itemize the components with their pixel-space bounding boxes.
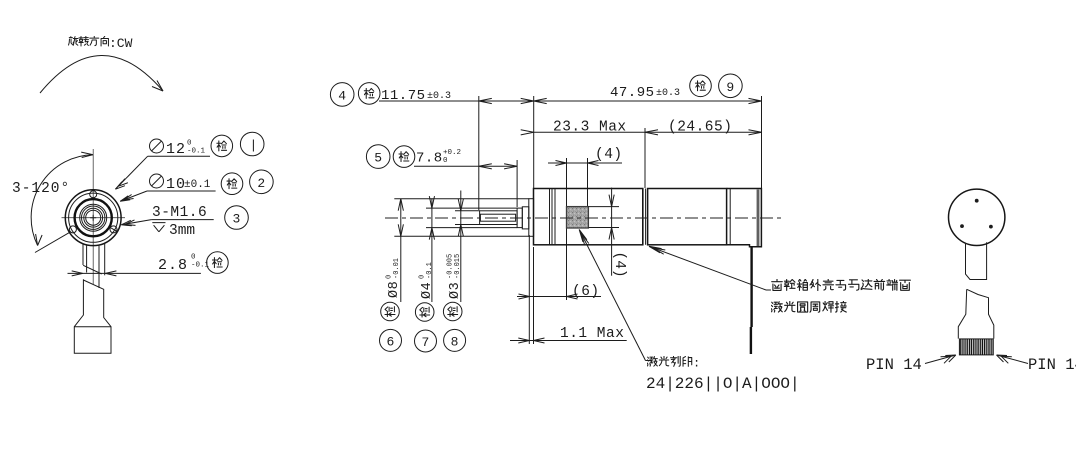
svg-text:(24.65): (24.65) [668, 120, 732, 136]
svg-text:|: | [250, 138, 258, 153]
svg-text:3-M1.6: 3-M1.6 [152, 205, 207, 221]
svg-text:5: 5 [374, 151, 382, 166]
svg-text:3: 3 [233, 212, 241, 227]
svg-text:1.1 Max: 1.1 Max [560, 326, 624, 342]
svg-text:Ø4: Ø4 [420, 282, 435, 299]
svg-text:0: 0 [191, 254, 196, 262]
svg-text:±0.1: ±0.1 [184, 179, 211, 191]
svg-text:-0.01: -0.01 [393, 258, 401, 279]
svg-text:PIN 14: PIN 14 [866, 356, 922, 374]
svg-text:Ø3: Ø3 [448, 282, 463, 299]
svg-text:11.75: 11.75 [381, 88, 426, 104]
svg-text:10: 10 [166, 176, 186, 193]
svg-text:PIN 14: PIN 14 [1028, 356, 1076, 374]
svg-text:Ø8: Ø8 [387, 281, 402, 298]
svg-text:24|226||O|A|OOO|: 24|226||O|A|OOO| [646, 375, 800, 393]
svg-text:4: 4 [338, 88, 346, 103]
svg-text:47.95: 47.95 [610, 85, 655, 101]
svg-text:+0.2: +0.2 [443, 149, 461, 157]
svg-text:±0.3: ±0.3 [427, 91, 451, 102]
svg-text:2: 2 [257, 176, 265, 191]
svg-text:9: 9 [726, 80, 734, 95]
svg-text:(4): (4) [611, 252, 627, 278]
svg-text:-0.015: -0.015 [454, 254, 462, 279]
svg-text:0: 0 [187, 140, 192, 148]
svg-text:(6): (6) [572, 284, 600, 300]
svg-text:(4): (4) [595, 147, 623, 163]
svg-text:0: 0 [443, 157, 448, 165]
svg-text:12: 12 [166, 141, 186, 158]
svg-text::CW: :CW [109, 36, 133, 51]
svg-text:-0.1: -0.1 [426, 262, 434, 279]
svg-text:7.8: 7.8 [416, 151, 443, 167]
svg-text::: : [693, 357, 700, 371]
svg-text:23.3 Max: 23.3 Max [553, 120, 627, 136]
svg-text:8: 8 [451, 334, 459, 349]
svg-text:6: 6 [387, 334, 395, 349]
svg-text:±0.3: ±0.3 [656, 88, 680, 99]
svg-text:-0.1: -0.1 [187, 148, 206, 156]
svg-text:7: 7 [422, 335, 430, 350]
svg-text:3mm: 3mm [169, 223, 195, 239]
svg-text:2.8: 2.8 [158, 257, 188, 274]
